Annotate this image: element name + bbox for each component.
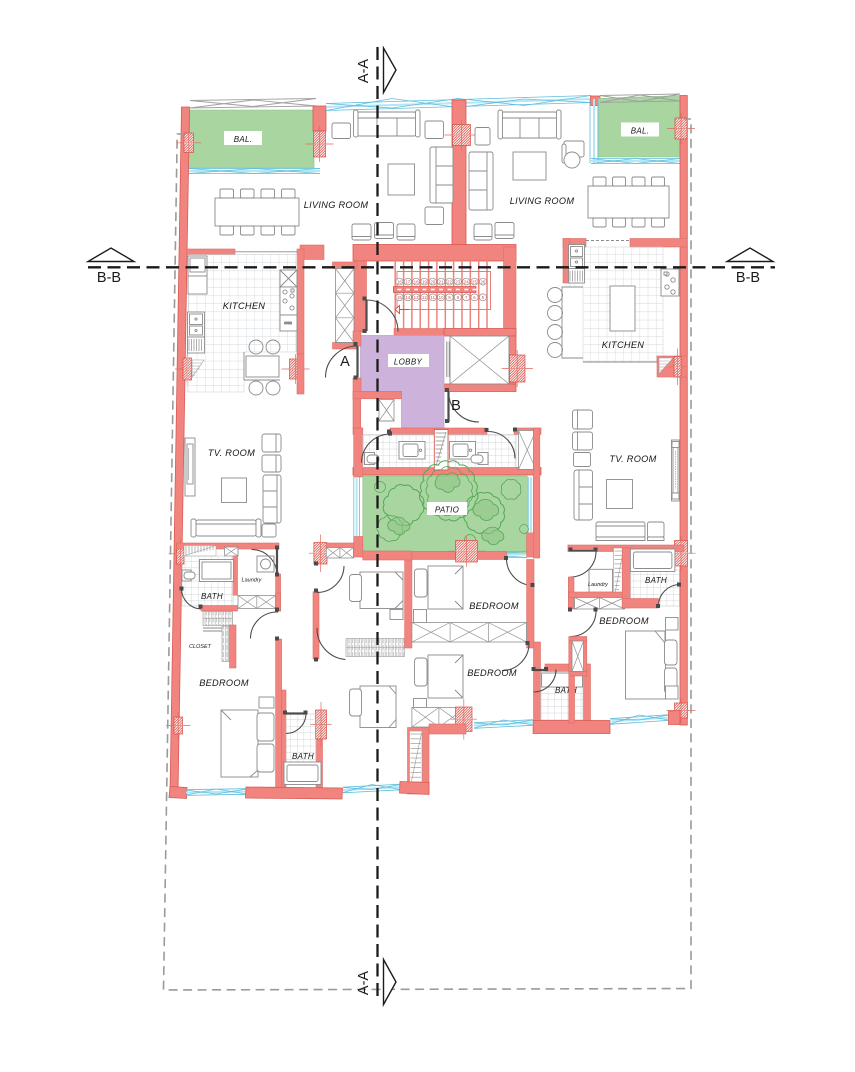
svg-text:10: 10 <box>439 295 444 300</box>
svg-text:BATH: BATH <box>645 576 667 585</box>
svg-text:BEDROOM: BEDROOM <box>469 601 519 611</box>
svg-text:B-B: B-B <box>736 270 760 286</box>
svg-text:LIVING ROOM: LIVING ROOM <box>510 196 575 206</box>
svg-text:A: A <box>340 354 350 370</box>
svg-text:14: 14 <box>405 295 410 300</box>
svg-text:26: 26 <box>480 279 485 284</box>
svg-text:BEDROOM: BEDROOM <box>467 668 517 678</box>
svg-text:Laundry: Laundry <box>588 582 609 588</box>
svg-text:13: 13 <box>414 295 419 300</box>
svg-text:12: 12 <box>422 295 427 300</box>
svg-text:TV. ROOM: TV. ROOM <box>208 448 255 458</box>
svg-text:BEDROOM: BEDROOM <box>199 678 249 688</box>
svg-text:Laundry: Laundry <box>242 578 263 584</box>
svg-text:24: 24 <box>464 279 469 284</box>
svg-text:B-B: B-B <box>97 270 121 286</box>
svg-text:KITCHEN: KITCHEN <box>223 301 265 311</box>
svg-text:20: 20 <box>430 279 435 284</box>
svg-text:KITCHEN: KITCHEN <box>602 340 644 350</box>
svg-text:TV. ROOM: TV. ROOM <box>609 454 656 464</box>
svg-text:11: 11 <box>431 295 436 300</box>
svg-text:22: 22 <box>447 279 452 284</box>
svg-text:19: 19 <box>422 279 427 284</box>
svg-text:PATIO: PATIO <box>435 506 459 515</box>
svg-text:18: 18 <box>414 279 419 284</box>
svg-text:BAL.: BAL. <box>631 127 650 136</box>
svg-text:A-A: A-A <box>356 59 372 84</box>
svg-text:17: 17 <box>405 279 410 284</box>
svg-text:16: 16 <box>397 279 402 284</box>
svg-text:B: B <box>451 398 461 414</box>
svg-text:21: 21 <box>439 279 444 284</box>
svg-text:15: 15 <box>397 295 402 300</box>
svg-text:CLOSET: CLOSET <box>189 644 212 650</box>
svg-text:A-A: A-A <box>356 971 372 996</box>
svg-text:BATH: BATH <box>201 592 223 601</box>
svg-text:LOBBY: LOBBY <box>394 358 423 367</box>
svg-text:BEDROOM: BEDROOM <box>599 616 649 626</box>
svg-text:25: 25 <box>472 279 477 284</box>
svg-text:LIVING ROOM: LIVING ROOM <box>304 200 369 210</box>
svg-text:oven: oven <box>284 321 292 325</box>
svg-text:BATH: BATH <box>292 752 314 761</box>
svg-text:BAL.: BAL. <box>234 135 253 144</box>
svg-text:23: 23 <box>455 279 460 284</box>
